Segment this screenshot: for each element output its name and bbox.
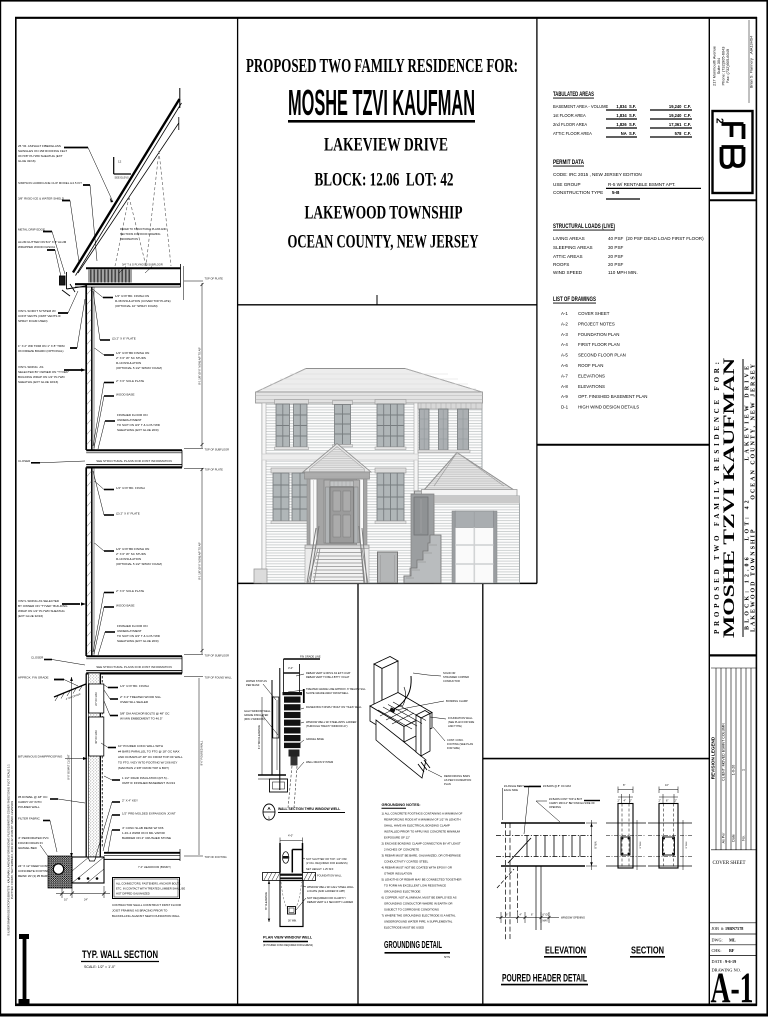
svg-text:A-3: A-3: [561, 332, 568, 337]
svg-text:5) LENGTHS OF REBAR MAY BE CON: 5) LENGTHS OF REBAR MAY BE CONNECTED TOG…: [382, 878, 462, 882]
svg-text:8'-0" POURED WALL: 8'-0" POURED WALL: [200, 740, 204, 765]
svg-text:WALL SECTION THRU WINDOW WELL: WALL SECTION THRU WINDOW WELL: [278, 807, 340, 811]
svg-text:10" POURED CONC WALL WITH: 10" POURED CONC WALL WITH: [118, 744, 163, 748]
svg-text:2" X 6" W" SC STUDS: 2" X 6" W" SC STUDS: [116, 552, 146, 556]
svg-text:ON 5/8" PLYWD SHEATHG (EXT: ON 5/8" PLYWD SHEATHG (EXT: [18, 154, 63, 158]
svg-text:LAKEWOOD TOWNSHIP: LAKEWOOD TOWNSHIP: [305, 203, 463, 224]
svg-text:#4 BARS @ 8" OC MAX: #4 BARS @ 8" OC MAX: [543, 784, 571, 788]
svg-text:2": 2": [675, 799, 677, 803]
svg-text:WOOD BASE: WOOD BASE: [116, 604, 135, 608]
svg-text:OPT. FINISHED BASEMENT PLAN: OPT. FINISHED BASEMENT PLAN: [578, 394, 647, 399]
svg-text:WATER STOP AS: WATER STOP AS: [246, 679, 267, 683]
svg-text:WRAPPED WOOD FASCIA: WRAPPED WOOD FASCIA: [18, 245, 55, 249]
svg-text:BACKFILLING AGAINST NEW FOUNDA: BACKFILLING AGAINST NEW FOUNDATION WALL: [112, 914, 180, 918]
svg-text:8": 8": [623, 783, 625, 787]
svg-text:R-19 INSULATION: R-19 INSULATION: [116, 557, 141, 561]
svg-text:1/2" GYP BD FINISH ON: 1/2" GYP BD FINISH ON: [116, 351, 149, 355]
svg-text:24": 24": [84, 898, 88, 902]
svg-text:BY OWNER ON "TYVEK" BUILDING: BY OWNER ON "TYVEK" BUILDING: [18, 604, 68, 608]
svg-text:STRUCTURAL LOADS (LIVE): STRUCTURAL LOADS (LIVE): [553, 223, 615, 230]
svg-text:578 C.F.: 578 C.F.: [675, 131, 691, 136]
svg-text:BASEMENT AREA - VOLUME: BASEMENT AREA - VOLUME: [553, 104, 608, 109]
svg-text:A-7: A-7: [561, 373, 568, 378]
svg-text:PLAN VIEW WINDOW WELL: PLAN VIEW WINDOW WELL: [263, 936, 313, 940]
svg-text:SIMPSON HURRICANE CLIP MODEL H: SIMPSON HURRICANE CLIP MODEL H4.5 KIT: [18, 181, 82, 185]
svg-text:(OPTIONAL 10" SPRAY FOAM): (OPTIONAL 10" SPRAY FOAM): [115, 304, 158, 308]
svg-text:GRAVEL BED: GRAVEL BED: [18, 846, 38, 850]
svg-text:19BN7578: 19BN7578: [725, 926, 743, 931]
svg-text:R-38 INSULATION (COVER TOP PLA: R-38 INSULATION (COVER TOP PLATE): [115, 299, 171, 303]
svg-text:SEE STRUCTURAL PLANS FOR JOIST: SEE STRUCTURAL PLANS FOR JOIST INFORMATI…: [96, 459, 172, 463]
svg-text:17,361 C.F.: 17,361 C.F.: [669, 122, 691, 127]
svg-text:SLEEPING AREAS: SLEEPING AREAS: [553, 245, 593, 250]
svg-text:FIRST FLOOR PLAN: FIRST FLOOR PLAN: [578, 342, 620, 347]
svg-text:#5 DOWEL @ 48" OC: #5 DOWEL @ 48" OC: [18, 795, 48, 799]
svg-text:ALL CONNECTORS, FASTENERS, ANC: ALL CONNECTORS, FASTENERS, ANCHOR BOLTS,: [116, 882, 181, 886]
svg-text:5/8" DIA ANCHOR BOLTS @ 48" OC: 5/8" DIA ANCHOR BOLTS @ 48" OC: [120, 712, 170, 716]
svg-text:REBAR VERT & 4 SECURITY LADDER: REBAR VERT & 4 SECURITY LADDER: [307, 900, 353, 904]
svg-text:REINFORCING BARS: REINFORCING BARS: [444, 774, 470, 778]
svg-text:VINYL SIDING AS SELECTED: VINYL SIDING AS SELECTED: [18, 599, 60, 603]
svg-text:1,834 S.F.: 1,834 S.F.: [616, 104, 636, 109]
svg-text:19,240 C.F.: 19,240 C.F.: [669, 104, 691, 109]
svg-text:NOT REQUIRED FOR CLARITY /: NOT REQUIRED FOR CLARITY /: [307, 896, 346, 900]
svg-text:8'-1 1/8" (8'-0" NOM) A/F TO: 8'-1 1/8" (8'-0" NOM) A/F TO A/F: [198, 542, 202, 580]
svg-text:8" MIN: 8" MIN: [686, 841, 688, 848]
svg-text:4'-0": 4'-0": [288, 834, 293, 838]
svg-text:AND #4 BARS AT 48" OC FROM TOP: AND #4 BARS AT 48" OC FROM TOP OF WALL: [118, 755, 183, 759]
svg-text:(SEE PLAN FOR SIZE: (SEE PLAN FOR SIZE: [448, 720, 475, 724]
svg-text:PER MANF: PER MANF: [246, 683, 260, 687]
svg-text:40 PSF (20 PSF DEAD LOAD FIRS: 40 PSF (20 PSF DEAD LOAD FIRST FLOOR): [608, 236, 704, 241]
svg-text:8'-1 1/8" (8'-0" NOM) A/F TO: 8'-1 1/8" (8'-0" NOM) A/F TO A/F: [198, 347, 202, 385]
svg-text:2: 2: [714, 118, 725, 124]
svg-text:FOUNDATION WALL: FOUNDATION WALL: [448, 716, 473, 720]
svg-text:W/ MIN EMBEDMENT TO 46.5": W/ MIN EMBEDMENT TO 46.5": [120, 717, 163, 721]
svg-text:3/4" T & G PLYWOOD SUBFLOOR: 3/4" T & G PLYWOOD SUBFLOOR: [122, 263, 163, 267]
svg-text:8" MIN: 8" MIN: [595, 841, 598, 848]
svg-text:9-6-19: 9-6-19: [725, 959, 736, 964]
svg-text:REINFORCING RODS AT A MINIMUM: REINFORCING RODS AT A MINIMUM OF 1/2" IN…: [384, 818, 461, 822]
svg-text:GROUNDING ELECTRODE: GROUNDING ELECTRODE: [384, 890, 421, 894]
svg-text:GROUNDING DETAIL: GROUNDING DETAIL: [384, 940, 442, 951]
svg-text:MOSHE TZVI KAUFMAN: MOSHE TZVI KAUFMAN: [721, 357, 738, 638]
svg-text:2" X 6" SOLE PLATE: 2" X 6" SOLE PLATE: [116, 589, 144, 593]
svg-text:TOP OF SUBFLOOR: TOP OF SUBFLOOR: [205, 448, 230, 452]
svg-text:36" CLEARANCE: 36" CLEARANCE: [265, 892, 268, 911]
svg-text:SHEATHING (EXT GLUE 20/0): SHEATHING (EXT GLUE 20/0): [117, 428, 159, 432]
svg-text:DATE :: DATE :: [712, 959, 725, 964]
svg-text:4'-0" MIN CLEARANCE: 4'-0" MIN CLEARANCE: [258, 724, 261, 749]
svg-text:POURED HEADER DETAIL: POURED HEADER DETAIL: [502, 973, 587, 985]
svg-text:ELEVATIONS: ELEVATIONS: [578, 373, 605, 378]
svg-text:TOP OF SUBFLOOR: TOP OF SUBFLOOR: [205, 654, 230, 658]
svg-text:UNDERLAYMENT: UNDERLAYMENT: [117, 418, 142, 422]
svg-text:LAKEVIEW DRIVE: LAKEVIEW DRIVE: [324, 135, 448, 156]
svg-text:1/2" PRE-MOLDED EXPANSION JOIN: 1/2" PRE-MOLDED EXPANSION JOINT: [122, 812, 176, 816]
svg-text:CONTRACTOR SHALL CONSTRUCT FIR: CONTRACTOR SHALL CONSTRUCT FIRST FLOOR: [112, 903, 181, 907]
svg-text:ELEVATIONS: ELEVATIONS: [578, 384, 605, 389]
svg-text:48" OC MAX: 48" OC MAX: [95, 730, 98, 744]
svg-text:PLAN: PLAN: [444, 782, 451, 786]
svg-text:LIVING AREAS: LIVING AREAS: [553, 236, 585, 241]
svg-text:19,240 C.F.: 19,240 C.F.: [669, 113, 691, 118]
svg-text:(2) 2" X 6" PLATE: (2) 2" X 6" PLATE: [116, 512, 140, 516]
svg-text:7'-0" HEADROOM (BSMNT): 7'-0" HEADROOM (BSMNT): [138, 865, 171, 869]
svg-text:6": 6": [666, 799, 668, 803]
svg-text:FOUNDATION WALL: FOUNDATION WALL: [317, 874, 342, 878]
svg-text:As Per: As Per: [721, 832, 725, 844]
svg-text:HIGH WIND DESIGN DETAILS: HIGH WIND DESIGN DETAILS: [578, 405, 639, 410]
svg-text:A-8: A-8: [561, 384, 568, 389]
svg-text:STRANDED COPPER: STRANDED COPPER: [443, 675, 469, 679]
svg-text:REVISION LEGEND: REVISION LEGEND: [710, 736, 715, 779]
svg-text:110 MPH MIN.: 110 MPH MIN.: [608, 270, 638, 275]
svg-text:WINDOW OPENING: WINDOW OPENING: [561, 916, 585, 920]
svg-text:8'-0" BSMNT CLG HT: 8'-0" BSMNT CLG HT: [67, 754, 71, 780]
svg-text:4": 4": [520, 914, 522, 917]
svg-text:FINISHED FLOOR ON: FINISHED FLOOR ON: [117, 413, 148, 417]
svg-text:EACH SIDE: EACH SIDE: [504, 788, 518, 792]
svg-text:PERMIT DATA: PERMIT DATA: [553, 159, 584, 166]
svg-text:1 1/2" RIGID INSULATION (R7.5): 1 1/2" RIGID INSULATION (R7.5) -: [122, 776, 169, 780]
svg-text:3) REBAR MUST BE BARE, GALVANI: 3) REBAR MUST BE BARE, GALVANIZED, OR OT…: [382, 854, 461, 858]
svg-text:NOT SHUTTER OR TOP: 1/4" OSF: NOT SHUTTER OR TOP: 1/4" OSF: [306, 857, 347, 861]
svg-text:SEE STRUCTURAL PLANS FOR JOIST: SEE STRUCTURAL PLANS FOR JOIST INFORMATI…: [96, 665, 172, 669]
svg-text:VINYL SOFFIT SYSTEM W/: VINYL SOFFIT SYSTEM W/: [18, 309, 56, 313]
svg-text:COVER SHEET: COVER SHEET: [578, 311, 610, 316]
svg-text:OCEAN COUNTY, NEW JERSEY: OCEAN COUNTY, NEW JERSEY: [288, 232, 479, 253]
svg-text:10": 10": [665, 783, 669, 787]
svg-text:AS PER FOUNDATION: AS PER FOUNDATION: [444, 778, 471, 782]
svg-text:1/2" GYP BD FINISH ON: 1/2" GYP BD FINISH ON: [116, 547, 149, 551]
svg-text:3/8" RIGID ICE & WATER SHIELD: 3/8" RIGID ICE & WATER SHIELD: [18, 197, 65, 201]
svg-text:TYP. WALL SECTION: TYP. WALL SECTION: [82, 949, 158, 961]
svg-text:METAL DRIP EDGE: METAL DRIP EDGE: [18, 228, 45, 232]
svg-text:2" X 4" TREATED WOOD SILL: 2" X 4" TREATED WOOD SILL: [120, 695, 162, 699]
svg-text:BONDING CLAMP: BONDING CLAMP: [446, 699, 468, 703]
svg-text:1: 1: [741, 769, 745, 771]
svg-text:PROPOSED TWO FAMILY RESIDENCE: PROPOSED TWO FAMILY RESIDENCE FOR:: [246, 55, 518, 77]
svg-text:CLIENT: MOVED BSMNT COLUMN: CLIENT: MOVED BSMNT COLUMN: [721, 723, 725, 781]
svg-text:FILTER FABRIC: FILTER FABRIC: [18, 817, 41, 821]
svg-text:LAKEWOOD TOWNSHIP OCEAN: LAKEWOOD TOWNSHIP OCEAN COUNTY, NEW JERS…: [751, 363, 757, 632]
svg-text:PLOTTED: FRIDAY, SEPTEMBER 6,: PLOTTED: FRIDAY, SEPTEMBER 6, 2019 10:42…: [10, 801, 14, 899]
svg-text:1/2" GYP BD. FINISH: 1/2" GYP BD. FINISH: [120, 684, 149, 688]
svg-text:SECTION: SECTION: [631, 945, 664, 957]
svg-text:GRADE INSULATED: GRADE INSULATED: [244, 713, 268, 717]
svg-text:CLOSER: CLOSER: [31, 656, 44, 660]
svg-text:CARRY 24" INTO: CARRY 24" INTO: [18, 800, 42, 804]
svg-text:2nd FLOOR AREA: 2nd FLOOR AREA: [553, 122, 587, 127]
svg-text:APPROX. FIN GRADE: APPROX. FIN GRADE: [18, 676, 49, 680]
svg-text:36" MIN.: 36" MIN.: [288, 921, 297, 923]
svg-text:CONDUCTOR: CONDUCTOR: [443, 679, 460, 683]
svg-text:Fax: (732)905-6049: Fax: (732)905-6049: [725, 49, 730, 83]
svg-text:JOIST FRAMING AS BRACING PRIO: JOIST FRAMING AS BRACING PRIOR TO: [112, 909, 168, 913]
svg-text:#4 BARS CONT TOP & BOT: #4 BARS CONT TOP & BOT: [549, 797, 583, 801]
svg-text:CONT. CONC.: CONT. CONC.: [447, 738, 464, 742]
svg-text:2" X 4" KEY: 2" X 4" KEY: [122, 799, 138, 803]
svg-text:(EXT GLUE 32/16): (EXT GLUE 32/16): [18, 614, 43, 618]
svg-text:TO SUIT ON 3/4" T & G PLYWD: TO SUIT ON 3/4" T & G PLYWD: [117, 634, 161, 638]
svg-text:7) WHERE THE GROUNDING ELECTRO: 7) WHERE THE GROUNDING ELECTRODE IS A ME…: [382, 914, 456, 918]
svg-text:2": 2": [618, 799, 620, 803]
svg-text:TABULATED AREAS: TABULATED AREAS: [553, 91, 594, 98]
svg-text:PROJECT NOTES: PROJECT NOTES: [578, 321, 615, 326]
svg-text:5-B: 5-B: [612, 190, 620, 195]
svg-text:(2' DIA. REQUIRED FOR EGRESS): (2' DIA. REQUIRED FOR EGRESS): [306, 861, 348, 865]
svg-text:GALV WINDOW WELL: GALV WINDOW WELL: [244, 709, 271, 713]
svg-text:TOP OF PLATE: TOP OF PLATE: [205, 277, 224, 281]
svg-text:2" X 6" W" SC STUDS: 2" X 6" W" SC STUDS: [116, 356, 146, 360]
svg-text:20 PSF: 20 PSF: [608, 262, 624, 267]
svg-text:CONCRETE FOOTING: CONCRETE FOOTING: [18, 869, 50, 873]
svg-text:FOUNDATION PLAN: FOUNDATION PLAN: [578, 332, 619, 337]
svg-text:A-1: A-1: [561, 311, 568, 316]
svg-text:3'-0": 3'-0": [288, 666, 293, 670]
svg-text:UNDERLAYMENT: UNDERLAYMENT: [117, 629, 142, 633]
svg-text:TO FTG / KEY INTO FOOTING W/ 2: TO FTG / KEY INTO FOOTING W/ 2X6 KEY: [118, 761, 177, 765]
svg-text:TOP OF FOUND WALL: TOP OF FOUND WALL: [205, 676, 233, 680]
svg-text:HOT DIPPED GALVANIZED: HOT DIPPED GALVANIZED: [116, 892, 150, 896]
svg-text:(MAINTAIN 2 3/8" FROM TOP & BO: (MAINTAIN 2 3/8" FROM TOP & BOT): [118, 766, 169, 770]
svg-text:GROUNDING CONDUCTOR WHERE IN E: GROUNDING CONDUCTOR WHERE IN EARTH OR: [384, 902, 452, 906]
svg-text:A-4: A-4: [561, 342, 568, 347]
svg-text:ATTIC AREAS: ATTIC AREAS: [553, 254, 583, 259]
svg-text:TOP OF FOOTING: TOP OF FOOTING: [205, 855, 227, 859]
svg-text:12: 12: [118, 160, 122, 164]
svg-text:30 PSF: 30 PSF: [608, 245, 624, 250]
svg-text:GLUE 32/16): GLUE 32/16): [18, 159, 36, 163]
svg-text:BLOCK: 12.06 LOT: 42: BLOCK: 12.06 LOT: 42: [315, 170, 454, 191]
svg-text:2" X 6" SOLE PLATE: 2" X 6" SOLE PLATE: [116, 379, 144, 383]
svg-text:VINYL SIDING AS: VINYL SIDING AS: [18, 365, 43, 369]
svg-text:CONDUCTIVITY COATED STEEL: CONDUCTIVITY COATED STEEL: [384, 860, 429, 864]
svg-text:INSTALLED PRIOR TO APPLYING CO: INSTALLED PRIOR TO APPLYING CONCRETE MIN…: [384, 830, 461, 834]
svg-text:TREATED GRADE LINE APPROX. 6": TREATED GRADE LINE APPROX. 6" BELOW SILL: [306, 687, 366, 691]
svg-text:(OPTIONAL 5 1/2" SPRAY FOAM): (OPTIONAL 5 1/2" SPRAY FOAM): [116, 562, 162, 566]
svg-text:D-1: D-1: [561, 405, 569, 410]
svg-text:10": 10": [64, 898, 68, 902]
svg-text:REFER TO STRUCTURAL PLANS AND: REFER TO STRUCTURAL PLANS AND: [120, 227, 166, 231]
svg-text:GRAVEL BASE: GRAVEL BASE: [306, 737, 324, 741]
svg-text:OPENING: OPENING: [549, 805, 561, 809]
svg-text:OVER SILL SEALER: OVER SILL SEALER: [120, 700, 149, 704]
svg-text:R-5 W/ RENTABLE BSMNT APT.: R-5 W/ RENTABLE BSMNT APT.: [608, 182, 675, 187]
svg-text:FINISHED FLOOR ON: FINISHED FLOOR ON: [117, 624, 148, 628]
svg-text:OTHER INSULATION: OTHER INSULATION: [384, 872, 412, 876]
svg-text:SUBJECT TO CORROSIVE CONDITION: SUBJECT TO CORROSIVE CONDITIONS: [384, 908, 439, 912]
svg-text:#4 BARS PARALLEL TO FTG @ 18": #4 BARS PARALLEL TO FTG @ 18" OC MAX: [118, 750, 180, 754]
svg-text:LOCATE (AND LADDER IF APP): LOCATE (AND LADDER IF APP): [307, 889, 345, 893]
svg-text:SPRAY FOAM USED): SPRAY FOAM USED): [18, 319, 48, 323]
svg-text:GROUNDING NOTES:: GROUNDING NOTES:: [382, 803, 421, 807]
svg-text:Date: Date: [731, 834, 735, 842]
svg-text:2": 2": [659, 799, 661, 803]
svg-text:ON FRIEZE BOARD (OPTIONAL): ON FRIEZE BOARD (OPTIONAL): [18, 349, 64, 353]
svg-text:LIST OF DRAWINGS: LIST OF DRAWINGS: [553, 296, 596, 303]
svg-text:4": 4": [624, 799, 626, 803]
svg-text:1" X 2" WD TRIM ON 1" X 8" TRI: 1" X 2" WD TRIM ON 1" X 8" TRIM: [18, 344, 65, 348]
svg-text:INFORMATION: INFORMATION: [120, 237, 138, 241]
svg-text:CARRY MIN 12" BEYOND EA SIDE O: CARRY MIN 12" BEYOND EA SIDE OF: [549, 801, 595, 805]
svg-text:BARRIER ON 4" CRUSHED STONE: BARRIER ON 4" CRUSHED STONE: [122, 836, 171, 840]
svg-text:1/2" GYP BD. FINISH ON: 1/2" GYP BD. FINISH ON: [115, 294, 149, 298]
svg-text:ELECTRODE MUST BE USED: ELECTRODE MUST BE USED: [384, 926, 424, 930]
svg-text:SEE ELEVS: SEE ELEVS: [115, 176, 130, 180]
svg-text:CLOSER: CLOSER: [18, 459, 31, 463]
svg-text:CONT VENTS (OMIT VENTS IF: CONT VENTS (OMIT VENTS IF: [18, 314, 61, 318]
svg-text:ALUM GUTTER ON 5/4" X 8" ALUM: ALUM GUTTER ON 5/4" X 8" ALUM: [18, 240, 67, 244]
svg-text:1.4/1.4 WWM ON 6 MIL VAPOR: 1.4/1.4 WWM ON 6 MIL VAPOR: [122, 831, 166, 835]
svg-text:WELL DRAIN SYSTEM: WELL DRAIN SYSTEM: [306, 760, 333, 764]
svg-text:EXPOSURE OF 12": EXPOSURE OF 12": [384, 836, 410, 840]
svg-text:A-9: A-9: [561, 394, 568, 399]
svg-text:REBAR VERT TO BE A BTTY VOLAT: REBAR VERT TO BE A BTTY VOLAT: [306, 675, 350, 679]
svg-text:8" MIN: 8" MIN: [640, 841, 642, 848]
svg-text:SELECTED BY OWNER ON "TYVEK": SELECTED BY OWNER ON "TYVEK": [18, 370, 69, 374]
svg-text:JOB #:: JOB #:: [712, 926, 725, 931]
svg-text:No.: No.: [741, 835, 745, 841]
svg-text:SOLID OR: SOLID OR: [443, 671, 456, 675]
svg-text:A-6: A-6: [561, 363, 568, 368]
svg-text:COVER SHEET: COVER SHEET: [713, 861, 746, 866]
svg-text:TOP OF PLATE: TOP OF PLATE: [205, 468, 224, 472]
svg-text:25 YR. ASPHALT FIBERGLASS: 25 YR. ASPHALT FIBERGLASS: [18, 144, 61, 148]
svg-text:SHINGLES ON 15# ROOFING FELT: SHINGLES ON 15# ROOFING FELT: [18, 149, 67, 153]
svg-text:1/2" GYP BD. FINISH: 1/2" GYP BD. FINISH: [116, 486, 145, 490]
svg-text:(IF POURED CONC REQUIRED FOR E: (IF POURED CONC REQUIRED FOR EGRESS): [263, 945, 313, 947]
svg-text:SECOND FLOOR PLAN: SECOND FLOOR PLAN: [578, 353, 626, 358]
svg-text:AND TYPE): AND TYPE): [448, 724, 462, 728]
svg-text:SCALE: 1/2" = 1'-0": SCALE: 1/2" = 1'-0": [84, 965, 116, 969]
svg-text:WINDOW WELL W/ GALV STEEL WALL: WINDOW WELL W/ GALV STEEL WALL: [307, 885, 354, 889]
svg-text:ROOFS: ROOFS: [553, 262, 569, 267]
svg-text:2": 2": [630, 799, 632, 803]
svg-text:NTS: NTS: [444, 955, 450, 959]
svg-text:SHEATHING (EXT GLUE 20/0): SHEATHING (EXT GLUE 20/0): [117, 639, 159, 643]
svg-text:24" X 12" DEEP CONT: 24" X 12" DEEP CONT: [18, 864, 49, 868]
svg-text:BF: BF: [729, 948, 735, 953]
svg-text:UNDERGROUND WATER PIPE, A SUPP: UNDERGROUND WATER PIPE, A SUPPLEMENTAL: [384, 920, 453, 924]
svg-text:A-2: A-2: [561, 321, 568, 326]
svg-text:FIN GRADE LINE: FIN GRADE LINE: [300, 655, 321, 659]
svg-text:2 INCHES OF CONCRETE: 2 INCHES OF CONCRETE: [384, 848, 419, 852]
svg-text:SLOPE GRADE AWAY FROM WELL: SLOPE GRADE AWAY FROM WELL: [306, 691, 349, 695]
svg-text:REBAR VERT & DIPLS AS EXT COAT: REBAR VERT & DIPLS AS EXT COAT: [306, 671, 351, 675]
svg-text:FOOTING (SEE PLAN: FOOTING (SEE PLAN: [447, 742, 473, 746]
svg-text:WRAP ON 1/2" PLYWD SHEATHG: WRAP ON 1/2" PLYWD SHEATHG: [18, 609, 65, 613]
svg-text:SHEATHG (EXT GLUE 32/16): SHEATHG (EXT GLUE 32/16): [18, 380, 58, 384]
svg-text:ATTIC FLOOR AREA: ATTIC FLOOR AREA: [553, 131, 592, 136]
svg-text:1: 1: [268, 816, 270, 820]
svg-text:A-5: A-5: [561, 353, 568, 358]
svg-text:1st FLOOR AREA: 1st FLOOR AREA: [553, 113, 586, 118]
svg-text:24" OC MAX: 24" OC MAX: [95, 692, 98, 706]
svg-text:DWG:: DWG:: [712, 937, 723, 942]
svg-text:USE GROUP: USE GROUP: [553, 182, 581, 187]
svg-text:ROOF PLAN: ROOF PLAN: [578, 363, 603, 368]
svg-text:NET HEIGHT: 1.25 SFF: NET HEIGHT: 1.25 SFF: [306, 867, 334, 871]
svg-text:4" CONC SLAB REINF W/ 6X6: 4" CONC SLAB REINF W/ 6X6: [122, 826, 164, 830]
svg-text:FOUND DRAIN IN: FOUND DRAIN IN: [18, 841, 43, 845]
svg-text:20 PSF: 20 PSF: [608, 254, 624, 259]
svg-text:6": 6": [531, 914, 533, 917]
svg-text:6) COPPER, NOT ALUMINUM, MUST: 6) COPPER, NOT ALUMINUM, MUST BE EMPLOYE…: [382, 896, 457, 900]
svg-text:(2) 2" X 6" PLATE: (2) 2" X 6" PLATE: [112, 337, 136, 341]
svg-text:POURED WALL: POURED WALL: [18, 805, 40, 809]
svg-text:REINF W/ (3) #5 BARS: REINF W/ (3) #5 BARS: [18, 874, 49, 878]
svg-text:R-19 INSULATION: R-19 INSULATION: [116, 361, 141, 365]
svg-text:(OPTIONAL 5 1/2" SPRAY FOAM): (OPTIONAL 5 1/2" SPRAY FOAM): [116, 366, 162, 370]
svg-text:CHK:: CHK:: [712, 948, 722, 953]
svg-text:6" OC: 6" OC: [543, 914, 550, 917]
svg-text:MOSHE TZVI KAUFMAN: MOSHE TZVI KAUFMAN: [288, 82, 475, 123]
svg-text:NA S.F.: NA S.F.: [621, 131, 636, 136]
svg-text:CODE: IRC 2015 , NEW JERSEY ED: CODE: IRC 2015 , NEW JERSEY EDITION: [553, 172, 642, 177]
svg-text:1-6-20: 1-6-20: [731, 765, 735, 775]
svg-text:WIND SPEED: WIND SPEED: [553, 270, 583, 275]
svg-text:1) ALL CONCRETE FOOTINGS CONTA: 1) ALL CONCRETE FOOTINGS CONTAINING A MI…: [382, 812, 463, 816]
svg-text:CONSTRUCTION TYPE: CONSTRUCTION TYPE: [553, 190, 603, 195]
svg-text:A-1: A-1: [711, 965, 754, 1012]
svg-text:FOR SIZE): FOR SIZE): [447, 746, 460, 750]
svg-text:6": 6": [506, 914, 508, 917]
svg-text:BITUMINOUS DAMPPROOFING: BITUMINOUS DAMPPROOFING: [18, 755, 63, 759]
svg-text:4) REBAR MUST NOT BE COATED WI: 4) REBAR MUST NOT BE COATED WITH EPOXY O…: [382, 866, 452, 870]
svg-text:OMIT IF FINISHED BASEMENT IS R: OMIT IF FINISHED BASEMENT IS R13: [122, 781, 175, 785]
svg-text:ELEVATION: ELEVATION: [545, 945, 586, 957]
svg-text:TO FORM AN EXCELLENT LOW RESIS: TO FORM AN EXCELLENT LOW RESISTANCE: [384, 884, 446, 888]
svg-text:ETC. IN CONTACT WITH TREATED L: ETC. IN CONTACT WITH TREATED LUMBER SHAL…: [116, 887, 185, 891]
svg-text:(THROUGH TREATY WINDOW AY): (THROUGH TREATY WINDOW AY): [306, 724, 348, 728]
svg-text:4" PERFORATED PVC: 4" PERFORATED PVC: [18, 836, 50, 840]
svg-text:WOOD BASE: WOOD BASE: [116, 393, 135, 397]
svg-text:SECTIONS FOR ROOF FRAMING: SECTIONS FOR ROOF FRAMING: [120, 232, 160, 236]
svg-text:#4 ANGLE BENT: #4 ANGLE BENT: [504, 784, 524, 788]
svg-text:1,826 S.F.: 1,826 S.F.: [616, 122, 636, 127]
svg-text:RAISED BOLT DISPLY BUILT ON 'T: RAISED BOLT DISPLY BUILT ON 'TILES' WALL: [306, 705, 362, 709]
svg-text:1,834 S.F.: 1,834 S.F.: [616, 113, 636, 118]
svg-text:2) ENCASE BONDING CLAMP CONNEC: 2) ENCASE BONDING CLAMP CONNECTION BY AT…: [382, 842, 461, 846]
svg-text:WINDOW WELL W/ STEEL/APPL LADD: WINDOW WELL W/ STEEL/APPL LADDER: [306, 720, 357, 724]
svg-text:BUILDING WRAP ON 1/2" PLYWD: BUILDING WRAP ON 1/2" PLYWD: [18, 375, 65, 379]
svg-text:MAX: MAX: [543, 920, 549, 923]
svg-text:ML: ML: [729, 937, 736, 942]
svg-text:SHALL HAVE AN ELECTRICAL BONDI: SHALL HAVE AN ELECTRICAL BONDING CLAMP: [384, 824, 450, 828]
svg-text:TO SUIT ON 3/4" T & G PLYWD: TO SUIT ON 3/4" T & G PLYWD: [117, 423, 161, 427]
